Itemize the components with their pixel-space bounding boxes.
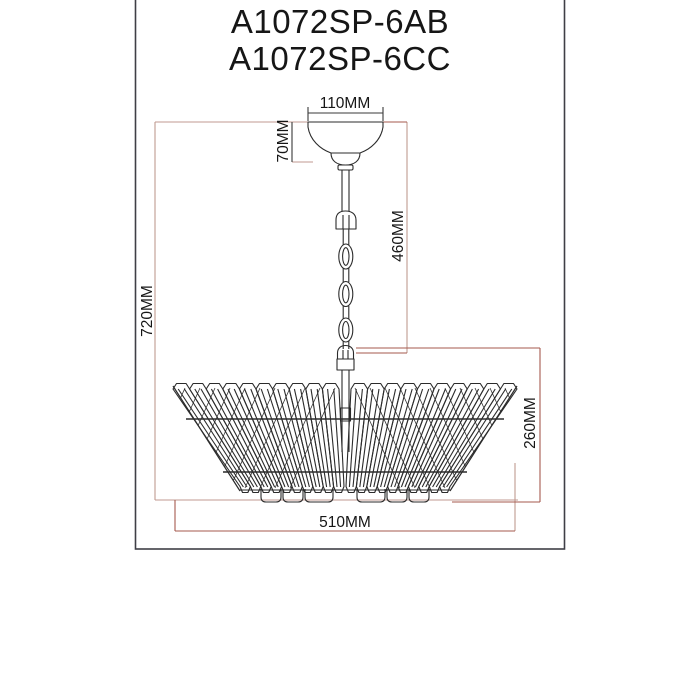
canopy-bottom-cap [331, 153, 360, 165]
suspension-rod [342, 170, 349, 211]
oval-link-3-inner [343, 322, 349, 339]
chain [336, 211, 356, 386]
drawing-canvas: A1072SP-6AB A1072SP-6CC 110MM 70MM 460MM… [0, 0, 700, 700]
frame-rect [136, 0, 565, 549]
canopy-bell [308, 122, 383, 153]
crystal-prism [322, 384, 344, 493]
dimension-drawing: A1072SP-6AB A1072SP-6CC 110MM 70MM 460MM… [0, 0, 700, 700]
dim-label-chain-drop: 460MM [390, 210, 407, 262]
chandelier-fixture [173, 122, 517, 502]
crystal-shade [173, 384, 517, 503]
chain-collar-bottom-body [337, 359, 354, 370]
drawing-frame [136, 0, 565, 549]
dim-label-shade-height: 260MM [522, 397, 539, 449]
dims-black [292, 107, 383, 162]
dim-label-shade-diameter: 510MM [319, 514, 371, 531]
oval-link-2-inner [343, 285, 349, 303]
dim-label-canopy-width: 110MM [320, 95, 371, 112]
chain-collar-bottom-arc [338, 346, 354, 360]
rod-cap [338, 165, 353, 170]
ceiling-canopy [308, 122, 383, 170]
dim-label-canopy-height: 70MM [275, 119, 292, 162]
page-title-line2: A1072SP-6CC [229, 40, 451, 77]
chain-collar-top [336, 211, 356, 229]
dims-dark [175, 122, 540, 531]
page-title-line1: A1072SP-6AB [231, 3, 449, 40]
dim-label-overall-height: 720MM [139, 285, 156, 337]
oval-link-1-inner [343, 248, 349, 266]
